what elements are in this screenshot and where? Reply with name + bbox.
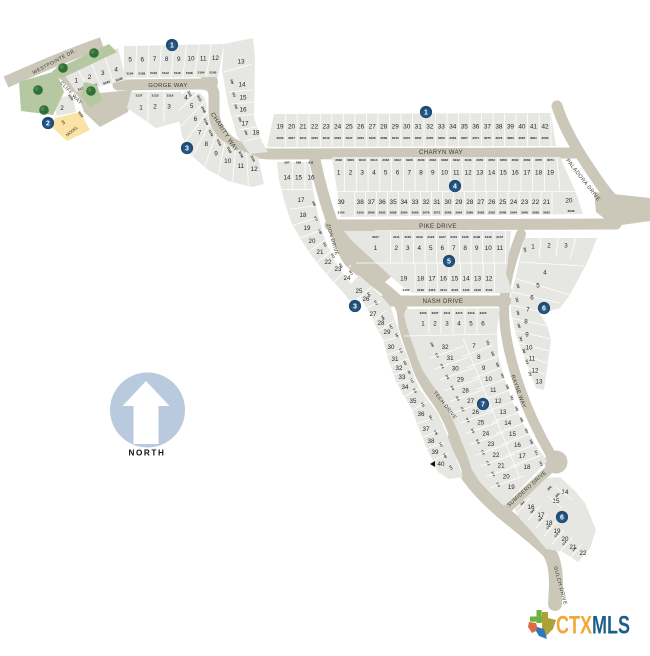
svg-text:34: 34 bbox=[400, 199, 408, 206]
svg-text:2: 2 bbox=[153, 103, 157, 110]
svg-text:3051: 3051 bbox=[415, 136, 422, 140]
svg-text:17: 17 bbox=[428, 276, 436, 283]
svg-text:36: 36 bbox=[379, 199, 387, 206]
svg-text:3143: 3143 bbox=[485, 235, 492, 239]
svg-text:22: 22 bbox=[580, 550, 587, 557]
svg-text:3106: 3106 bbox=[417, 288, 424, 292]
svg-text:3: 3 bbox=[445, 321, 449, 328]
svg-text:17: 17 bbox=[523, 170, 531, 177]
svg-text:3032: 3032 bbox=[543, 211, 550, 215]
svg-text:39: 39 bbox=[337, 199, 345, 206]
svg-text:3091: 3091 bbox=[530, 136, 537, 140]
svg-text:40: 40 bbox=[438, 461, 445, 468]
svg-text:2: 2 bbox=[60, 105, 64, 112]
svg-text:3014: 3014 bbox=[371, 158, 378, 162]
svg-text:7: 7 bbox=[408, 170, 412, 177]
svg-text:1: 1 bbox=[424, 109, 428, 116]
svg-text:11: 11 bbox=[200, 55, 207, 62]
svg-text:11: 11 bbox=[453, 170, 460, 177]
svg-text:1: 1 bbox=[421, 321, 425, 328]
svg-text:34: 34 bbox=[402, 384, 409, 391]
svg-text:30: 30 bbox=[452, 366, 459, 373]
svg-text:30: 30 bbox=[403, 124, 411, 131]
svg-text:39: 39 bbox=[432, 449, 439, 456]
svg-text:20: 20 bbox=[309, 238, 316, 245]
svg-text:16: 16 bbox=[440, 276, 448, 283]
svg-text:15: 15 bbox=[553, 498, 560, 505]
svg-text:22: 22 bbox=[493, 452, 500, 459]
svg-text:8: 8 bbox=[419, 170, 423, 177]
svg-text:15: 15 bbox=[239, 94, 247, 101]
svg-text:10: 10 bbox=[441, 170, 449, 177]
svg-text:3038: 3038 bbox=[568, 209, 575, 213]
svg-text:13: 13 bbox=[499, 409, 506, 416]
svg-text:3100: 3100 bbox=[357, 211, 364, 215]
svg-text:CTX: CTX bbox=[556, 612, 592, 640]
svg-text:3118: 3118 bbox=[451, 288, 458, 292]
svg-text:3059: 3059 bbox=[438, 136, 445, 140]
svg-text:12: 12 bbox=[212, 55, 220, 62]
svg-text:3088: 3088 bbox=[390, 211, 397, 215]
svg-text:28: 28 bbox=[466, 199, 474, 206]
svg-text:2: 2 bbox=[88, 74, 92, 81]
svg-text:2: 2 bbox=[349, 170, 353, 177]
svg-text:31: 31 bbox=[415, 124, 423, 131]
svg-text:19: 19 bbox=[547, 170, 555, 177]
svg-text:7: 7 bbox=[153, 56, 157, 63]
svg-text:3054: 3054 bbox=[488, 158, 495, 162]
svg-text:3119: 3119 bbox=[416, 235, 423, 239]
svg-text:32: 32 bbox=[396, 365, 403, 372]
svg-text:PIKE DRIVE: PIKE DRIVE bbox=[419, 224, 457, 230]
svg-text:8: 8 bbox=[477, 354, 481, 361]
svg-text:3203: 3203 bbox=[420, 311, 427, 315]
svg-text:6: 6 bbox=[542, 305, 546, 312]
svg-text:37: 37 bbox=[423, 426, 430, 433]
svg-text:3104: 3104 bbox=[338, 211, 345, 215]
svg-text:16: 16 bbox=[239, 106, 247, 113]
svg-text:12: 12 bbox=[495, 398, 502, 405]
svg-text:3207: 3207 bbox=[432, 311, 439, 315]
svg-text:5104: 5104 bbox=[198, 71, 205, 75]
svg-text:16: 16 bbox=[512, 170, 520, 177]
svg-text:9: 9 bbox=[431, 170, 435, 177]
svg-text:18: 18 bbox=[524, 464, 531, 471]
svg-text:5116: 5116 bbox=[174, 71, 181, 75]
svg-text:GORGE WAY: GORGE WAY bbox=[148, 83, 187, 89]
svg-text:28: 28 bbox=[462, 387, 469, 394]
svg-text:7: 7 bbox=[472, 343, 476, 350]
svg-text:4: 4 bbox=[418, 245, 422, 252]
svg-text:6: 6 bbox=[141, 56, 145, 63]
svg-text:3022: 3022 bbox=[394, 158, 401, 162]
svg-text:1: 1 bbox=[531, 243, 535, 250]
svg-text:37: 37 bbox=[368, 199, 376, 206]
svg-text:6: 6 bbox=[441, 245, 445, 252]
svg-text:9: 9 bbox=[475, 245, 479, 252]
svg-text:3: 3 bbox=[185, 145, 189, 152]
svg-text:12: 12 bbox=[465, 170, 473, 177]
svg-text:3067: 3067 bbox=[461, 136, 468, 140]
svg-text:3031: 3031 bbox=[357, 136, 364, 140]
svg-text:38: 38 bbox=[357, 199, 365, 206]
svg-text:3062: 3062 bbox=[512, 158, 519, 162]
svg-text:38: 38 bbox=[428, 438, 435, 445]
svg-text:3123: 3123 bbox=[427, 235, 434, 239]
svg-text:18: 18 bbox=[300, 212, 307, 219]
svg-text:3055: 3055 bbox=[426, 136, 433, 140]
svg-text:22: 22 bbox=[532, 199, 540, 206]
svg-text:4: 4 bbox=[184, 94, 188, 101]
svg-text:26: 26 bbox=[357, 124, 365, 131]
svg-text:12: 12 bbox=[485, 276, 493, 283]
svg-text:CHARYN WAY: CHARYN WAY bbox=[419, 150, 463, 156]
svg-text:3096: 3096 bbox=[368, 211, 375, 215]
svg-text:5: 5 bbox=[447, 258, 451, 265]
svg-text:23: 23 bbox=[323, 124, 331, 131]
svg-text:24: 24 bbox=[510, 199, 518, 206]
svg-text:3027: 3027 bbox=[346, 136, 353, 140]
svg-text:29: 29 bbox=[384, 329, 391, 336]
svg-text:21: 21 bbox=[317, 249, 324, 256]
svg-text:21: 21 bbox=[299, 124, 307, 131]
svg-text:3040: 3040 bbox=[521, 211, 528, 215]
svg-text:27: 27 bbox=[477, 199, 485, 206]
svg-text:4: 4 bbox=[114, 66, 118, 73]
svg-text:9: 9 bbox=[214, 151, 218, 158]
svg-text:MLS: MLS bbox=[592, 612, 630, 640]
svg-text:17: 17 bbox=[519, 453, 526, 460]
svg-text:3223: 3223 bbox=[480, 311, 487, 315]
svg-text:25: 25 bbox=[346, 124, 354, 131]
svg-text:3066: 3066 bbox=[523, 158, 530, 162]
svg-text:18: 18 bbox=[252, 129, 260, 136]
svg-text:19: 19 bbox=[304, 225, 311, 232]
svg-text:34: 34 bbox=[449, 124, 457, 131]
svg-text:6: 6 bbox=[560, 514, 564, 521]
svg-text:3011: 3011 bbox=[300, 136, 307, 140]
svg-text:3003: 3003 bbox=[277, 136, 284, 140]
svg-text:36: 36 bbox=[472, 124, 480, 131]
svg-text:9: 9 bbox=[177, 56, 181, 63]
svg-text:20: 20 bbox=[565, 197, 573, 204]
svg-text:23: 23 bbox=[487, 441, 494, 448]
svg-text:32: 32 bbox=[422, 199, 430, 206]
svg-text:8: 8 bbox=[165, 56, 169, 63]
svg-text:3006: 3006 bbox=[347, 158, 354, 162]
svg-text:587: 587 bbox=[284, 161, 289, 165]
svg-text:26: 26 bbox=[363, 296, 370, 303]
svg-text:3110: 3110 bbox=[429, 288, 436, 292]
svg-text:6: 6 bbox=[194, 116, 198, 123]
svg-text:2: 2 bbox=[46, 120, 50, 127]
svg-text:5108: 5108 bbox=[186, 71, 193, 75]
svg-text:3018: 3018 bbox=[382, 158, 389, 162]
svg-text:41: 41 bbox=[530, 124, 538, 131]
svg-text:3: 3 bbox=[360, 170, 364, 177]
svg-text:25: 25 bbox=[356, 288, 363, 295]
svg-text:5: 5 bbox=[469, 321, 473, 328]
svg-text:3079: 3079 bbox=[495, 136, 502, 140]
svg-text:NORTH: NORTH bbox=[128, 449, 165, 458]
svg-text:6: 6 bbox=[530, 294, 534, 301]
svg-text:1: 1 bbox=[337, 170, 341, 177]
svg-text:9: 9 bbox=[482, 365, 486, 372]
svg-text:598: 598 bbox=[296, 161, 301, 165]
svg-text:3070: 3070 bbox=[535, 158, 542, 162]
svg-text:33: 33 bbox=[399, 374, 406, 381]
svg-text:2: 2 bbox=[395, 245, 399, 252]
svg-text:3095: 3095 bbox=[542, 136, 549, 140]
svg-text:17: 17 bbox=[298, 197, 305, 204]
svg-text:NASH DRIVE: NASH DRIVE bbox=[423, 299, 464, 305]
svg-text:3035: 3035 bbox=[369, 136, 376, 140]
svg-text:1: 1 bbox=[139, 104, 143, 111]
svg-text:3107: 3107 bbox=[372, 235, 379, 239]
svg-text:3087: 3087 bbox=[518, 136, 525, 140]
svg-text:14: 14 bbox=[283, 175, 291, 182]
svg-text:5108: 5108 bbox=[138, 71, 145, 75]
svg-text:3119: 3119 bbox=[167, 94, 174, 98]
svg-text:12: 12 bbox=[251, 166, 259, 173]
svg-text:22: 22 bbox=[325, 259, 332, 266]
svg-text:3135: 3135 bbox=[462, 235, 469, 239]
svg-text:5: 5 bbox=[536, 282, 540, 289]
svg-text:26: 26 bbox=[472, 409, 479, 416]
svg-text:29: 29 bbox=[392, 124, 400, 131]
svg-text:3007: 3007 bbox=[288, 136, 295, 140]
svg-text:3064: 3064 bbox=[455, 211, 462, 215]
svg-text:3115: 3115 bbox=[404, 235, 411, 239]
svg-text:38: 38 bbox=[495, 124, 503, 131]
svg-text:4: 4 bbox=[543, 269, 547, 276]
svg-text:3122: 3122 bbox=[463, 288, 470, 292]
svg-text:3123: 3123 bbox=[152, 94, 159, 98]
svg-text:3219: 3219 bbox=[468, 311, 475, 315]
svg-text:10: 10 bbox=[485, 245, 493, 252]
svg-text:22: 22 bbox=[311, 124, 319, 131]
svg-text:7: 7 bbox=[452, 245, 456, 252]
svg-text:14: 14 bbox=[463, 276, 471, 283]
svg-text:35: 35 bbox=[390, 199, 398, 206]
svg-text:3127: 3127 bbox=[136, 94, 143, 98]
svg-text:5: 5 bbox=[429, 245, 433, 252]
svg-text:8: 8 bbox=[205, 141, 209, 148]
svg-text:3076: 3076 bbox=[423, 211, 430, 215]
svg-text:28: 28 bbox=[378, 320, 385, 327]
svg-text:20: 20 bbox=[503, 473, 510, 480]
svg-text:18: 18 bbox=[417, 276, 425, 283]
svg-text:13: 13 bbox=[476, 170, 484, 177]
svg-text:33: 33 bbox=[411, 199, 419, 206]
svg-text:26: 26 bbox=[488, 199, 496, 206]
svg-text:24: 24 bbox=[344, 275, 351, 282]
svg-text:3060: 3060 bbox=[466, 211, 473, 215]
svg-text:4: 4 bbox=[457, 321, 461, 328]
svg-text:3127: 3127 bbox=[439, 235, 446, 239]
svg-text:11: 11 bbox=[490, 387, 497, 394]
svg-text:13: 13 bbox=[536, 378, 543, 385]
svg-text:10: 10 bbox=[187, 56, 195, 63]
svg-text:3042: 3042 bbox=[453, 158, 460, 162]
svg-text:9: 9 bbox=[525, 331, 529, 338]
svg-text:7: 7 bbox=[198, 129, 202, 136]
svg-text:3044: 3044 bbox=[510, 211, 517, 215]
svg-text:16: 16 bbox=[307, 175, 315, 182]
svg-text:3: 3 bbox=[101, 70, 105, 77]
svg-text:3075: 3075 bbox=[484, 136, 491, 140]
svg-text:25: 25 bbox=[477, 420, 484, 427]
svg-text:19: 19 bbox=[400, 276, 408, 283]
svg-text:15: 15 bbox=[295, 175, 303, 182]
svg-text:25: 25 bbox=[499, 199, 507, 206]
svg-text:3058: 3058 bbox=[500, 158, 507, 162]
svg-text:27: 27 bbox=[467, 398, 474, 405]
svg-text:5116: 5116 bbox=[150, 71, 157, 75]
svg-text:3074: 3074 bbox=[547, 158, 554, 162]
svg-text:3126: 3126 bbox=[474, 288, 481, 292]
svg-text:3: 3 bbox=[564, 242, 568, 249]
svg-text:3048: 3048 bbox=[499, 211, 506, 215]
svg-text:3050: 3050 bbox=[476, 158, 483, 162]
svg-text:3111: 3111 bbox=[393, 235, 400, 239]
svg-text:2: 2 bbox=[433, 321, 437, 328]
svg-text:3: 3 bbox=[167, 103, 171, 110]
svg-text:29: 29 bbox=[457, 377, 464, 384]
svg-text:3019: 3019 bbox=[323, 136, 330, 140]
svg-text:3036: 3036 bbox=[532, 211, 539, 215]
svg-text:31: 31 bbox=[447, 355, 454, 362]
svg-text:3047: 3047 bbox=[403, 136, 410, 140]
svg-text:3083: 3083 bbox=[507, 136, 514, 140]
svg-text:3: 3 bbox=[353, 303, 357, 310]
svg-text:33: 33 bbox=[438, 124, 446, 131]
svg-text:1: 1 bbox=[74, 78, 78, 85]
svg-text:29: 29 bbox=[455, 199, 463, 206]
svg-text:2: 2 bbox=[547, 242, 551, 249]
svg-text:27: 27 bbox=[369, 124, 377, 131]
svg-text:5: 5 bbox=[190, 103, 194, 110]
svg-text:3039: 3039 bbox=[380, 136, 387, 140]
svg-text:16: 16 bbox=[514, 442, 521, 449]
svg-text:3052: 3052 bbox=[488, 211, 495, 215]
svg-text:21: 21 bbox=[543, 199, 551, 206]
svg-text:36: 36 bbox=[418, 411, 425, 418]
svg-text:5: 5 bbox=[384, 170, 388, 177]
svg-text:3023: 3023 bbox=[334, 136, 341, 140]
svg-text:15: 15 bbox=[509, 431, 516, 438]
svg-text:35: 35 bbox=[461, 124, 469, 131]
svg-text:24: 24 bbox=[482, 430, 489, 437]
svg-text:13: 13 bbox=[237, 58, 245, 65]
svg-text:611: 611 bbox=[309, 161, 314, 165]
svg-text:28: 28 bbox=[380, 124, 388, 131]
svg-text:3026: 3026 bbox=[406, 158, 413, 162]
svg-text:7: 7 bbox=[481, 401, 485, 408]
svg-text:14: 14 bbox=[488, 170, 496, 177]
svg-text:3102: 3102 bbox=[403, 288, 410, 292]
svg-text:4: 4 bbox=[453, 183, 457, 190]
svg-text:20: 20 bbox=[288, 124, 296, 131]
svg-text:30: 30 bbox=[444, 199, 452, 206]
svg-text:3015: 3015 bbox=[311, 136, 318, 140]
svg-text:3211: 3211 bbox=[444, 311, 451, 315]
svg-text:32: 32 bbox=[442, 344, 449, 351]
svg-text:3072: 3072 bbox=[433, 211, 440, 215]
svg-text:3147: 3147 bbox=[496, 235, 503, 239]
svg-text:31: 31 bbox=[392, 356, 399, 363]
svg-text:3043: 3043 bbox=[392, 136, 399, 140]
svg-text:15: 15 bbox=[500, 170, 508, 177]
svg-text:5100: 5100 bbox=[209, 71, 216, 75]
svg-text:3056: 3056 bbox=[477, 211, 484, 215]
svg-text:31: 31 bbox=[433, 199, 441, 206]
svg-text:3030: 3030 bbox=[418, 158, 425, 162]
svg-text:8: 8 bbox=[524, 318, 528, 325]
svg-text:7: 7 bbox=[526, 306, 530, 313]
svg-text:6: 6 bbox=[396, 170, 400, 177]
svg-text:21: 21 bbox=[498, 463, 505, 470]
svg-text:14: 14 bbox=[504, 420, 511, 427]
svg-text:15: 15 bbox=[451, 276, 459, 283]
svg-text:3139: 3139 bbox=[473, 235, 480, 239]
svg-text:19: 19 bbox=[276, 124, 284, 131]
svg-text:3068: 3068 bbox=[444, 211, 451, 215]
svg-text:3114: 3114 bbox=[440, 288, 447, 292]
svg-text:42: 42 bbox=[541, 124, 549, 131]
svg-text:1: 1 bbox=[374, 245, 378, 252]
svg-text:37: 37 bbox=[484, 124, 492, 131]
svg-text:30: 30 bbox=[388, 344, 395, 351]
svg-text:3038: 3038 bbox=[441, 158, 448, 162]
svg-text:4: 4 bbox=[372, 170, 376, 177]
svg-text:8: 8 bbox=[463, 245, 467, 252]
svg-text:23: 23 bbox=[521, 199, 529, 206]
svg-text:40: 40 bbox=[518, 124, 526, 131]
svg-text:5104: 5104 bbox=[126, 72, 133, 76]
svg-text:3080: 3080 bbox=[412, 211, 419, 215]
svg-text:1: 1 bbox=[170, 42, 174, 49]
svg-text:6: 6 bbox=[481, 321, 485, 328]
svg-text:5: 5 bbox=[128, 57, 132, 64]
svg-text:27: 27 bbox=[370, 311, 377, 318]
svg-text:5112: 5112 bbox=[162, 71, 169, 75]
svg-text:10: 10 bbox=[485, 376, 492, 383]
svg-text:3215: 3215 bbox=[456, 311, 463, 315]
svg-text:3092: 3092 bbox=[379, 211, 386, 215]
svg-text:3063: 3063 bbox=[449, 136, 456, 140]
svg-text:35: 35 bbox=[410, 398, 417, 405]
svg-text:3010: 3010 bbox=[359, 158, 366, 162]
svg-text:23: 23 bbox=[335, 266, 342, 273]
svg-text:14: 14 bbox=[238, 81, 246, 88]
svg-text:3084: 3084 bbox=[401, 211, 408, 215]
svg-text:18: 18 bbox=[535, 170, 543, 177]
svg-text:24: 24 bbox=[334, 124, 342, 131]
svg-text:3034: 3034 bbox=[429, 158, 436, 162]
svg-text:39: 39 bbox=[507, 124, 515, 131]
svg-text:3002: 3002 bbox=[335, 158, 342, 162]
svg-text:13: 13 bbox=[474, 276, 482, 283]
svg-text:32: 32 bbox=[426, 124, 434, 131]
svg-text:19: 19 bbox=[508, 484, 515, 491]
svg-text:11: 11 bbox=[237, 163, 244, 170]
svg-text:3046: 3046 bbox=[465, 158, 472, 162]
svg-text:11: 11 bbox=[496, 245, 503, 252]
svg-text:3071: 3071 bbox=[472, 136, 479, 140]
svg-text:3130: 3130 bbox=[485, 288, 492, 292]
svg-text:10: 10 bbox=[224, 158, 232, 165]
